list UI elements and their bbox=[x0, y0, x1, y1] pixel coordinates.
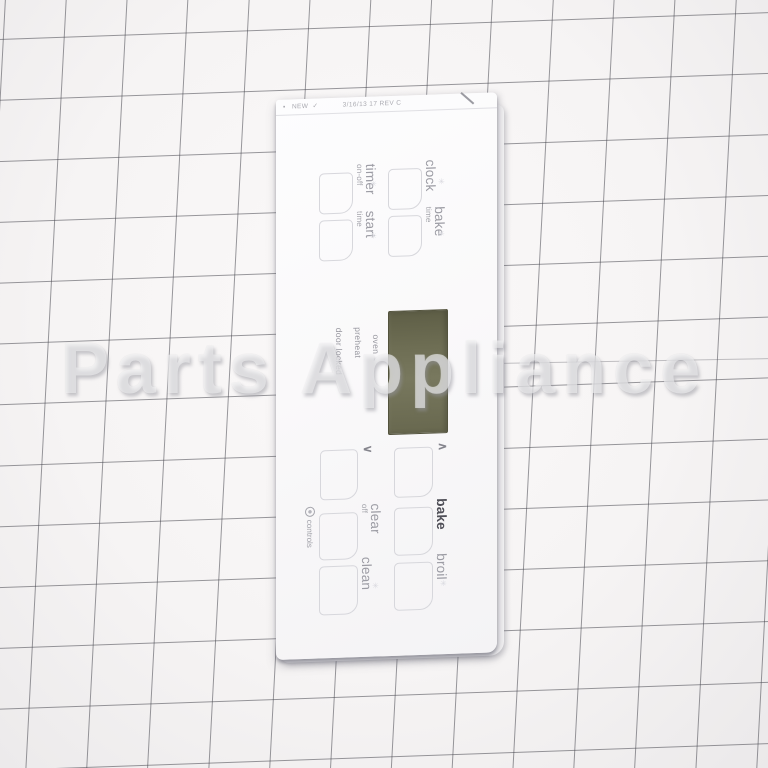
product-photo: ▪ NEW ✓ 3/16/13 17 REV C clock bake t bbox=[0, 0, 768, 768]
check-icon: ✓ bbox=[313, 103, 319, 110]
indicator-preheat: preheat bbox=[353, 327, 363, 358]
indicator-door-locked: door locked bbox=[334, 328, 344, 376]
registration-mark-icon: ▪ bbox=[283, 104, 286, 111]
bake-key: bake bbox=[394, 507, 433, 556]
clock-key: clock bbox=[388, 168, 422, 210]
print-mark-icon: ✳ bbox=[369, 232, 378, 239]
print-mark-icon: ✳ bbox=[369, 180, 378, 187]
revision-text: 3/16/13 17 REV C bbox=[343, 100, 402, 109]
clock-key-outline bbox=[388, 168, 422, 210]
timer-key-outline bbox=[319, 172, 353, 214]
brand-label: controls bbox=[306, 520, 315, 548]
broil-key-outline bbox=[394, 562, 433, 611]
clock-key-label: clock bbox=[424, 159, 436, 191]
panel-landscape-layout: clock bake time timer on-off bbox=[276, 108, 497, 660]
print-mark-icon: ✳ bbox=[437, 230, 446, 237]
print-mark-icon: ✳ bbox=[437, 178, 446, 185]
start-time-key-outline bbox=[319, 219, 353, 261]
bake-time-key: bake time bbox=[388, 215, 422, 257]
oven-control-overlay-panel: ▪ NEW ✓ 3/16/13 17 REV C clock bake t bbox=[276, 92, 497, 660]
bake-key-outline bbox=[394, 507, 433, 556]
panel-content: clock bake time timer on-off bbox=[276, 108, 497, 660]
broil-key: broil bbox=[394, 562, 433, 611]
down-arrow-key: ∨ bbox=[320, 449, 358, 500]
down-arrow-key-outline bbox=[320, 449, 358, 500]
print-mark-icon: ✳ bbox=[371, 582, 380, 589]
up-arrow-key: ∧ bbox=[394, 447, 433, 498]
brand-circle-icon bbox=[305, 507, 315, 517]
brand-mark: controls bbox=[305, 507, 315, 548]
clear-off-key-label: clear off bbox=[360, 503, 381, 534]
chevron-down-icon: ∨ bbox=[362, 445, 374, 454]
clear-off-key: clear off bbox=[319, 512, 358, 560]
broil-key-label: broil bbox=[435, 553, 447, 580]
bake-key-label: bake bbox=[435, 498, 447, 530]
strip-new-label: NEW bbox=[292, 103, 308, 111]
lcd-display-window bbox=[388, 309, 448, 435]
clean-key: clean bbox=[319, 565, 358, 615]
chevron-up-icon: ∧ bbox=[437, 442, 449, 451]
timer-on-off-key: timer on-off bbox=[319, 172, 353, 214]
up-arrow-key-outline bbox=[394, 447, 433, 498]
start-time-key: start time bbox=[319, 219, 353, 261]
bake-time-key-outline bbox=[388, 215, 422, 257]
print-mark-icon: ✳ bbox=[439, 580, 448, 587]
indicator-oven: oven bbox=[371, 334, 381, 354]
clear-off-key-outline bbox=[319, 512, 358, 560]
clean-key-outline bbox=[319, 565, 358, 615]
